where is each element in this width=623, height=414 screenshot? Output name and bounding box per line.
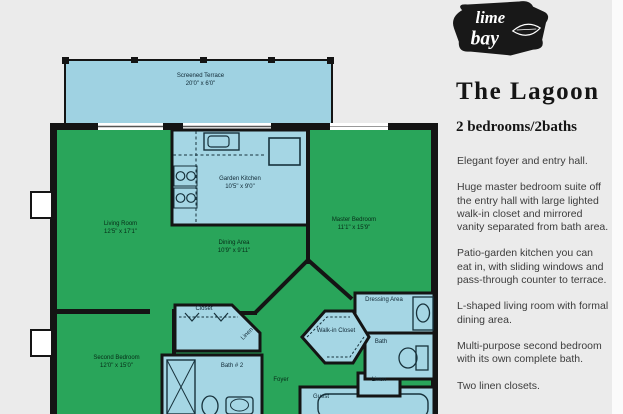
description-paragraph: Multi-purpose second bedroom with its ow… [457, 340, 610, 367]
label-second-bedroom: Second Bedroom 12'0" x 15'0" [74, 355, 159, 370]
label-dressing-area: Dressing Area [361, 297, 407, 305]
logo-word-lime: lime [476, 8, 506, 27]
label-walk-in-closet: Walk-in Closet [316, 328, 356, 336]
label-bath-2: Bath # 2 [209, 363, 255, 371]
label-linen-master: Linen [361, 377, 397, 385]
label-master-bedroom: Master Bedroom 11'1" x 15'9" [314, 217, 394, 232]
label-guest: Guest [305, 394, 337, 402]
description-paragraph: Huge master bedroom suite off the entry … [457, 181, 610, 234]
plan-title: The Lagoon [456, 78, 616, 106]
description-paragraph: Patio-garden kitchen you can eat in, wit… [457, 247, 610, 287]
label-living-room: Living Room 12'5" x 17'1" [78, 221, 163, 236]
lime-bay-logo: lime bay [452, 1, 550, 56]
description-paragraph: L-shaped living room with formal dining … [457, 300, 610, 327]
floorplan: Screened Terrace 20'0" x 6'0" Living Roo… [28, 54, 440, 414]
description-paragraph: Elegant foyer and entry hall. [457, 155, 610, 168]
plan-subtitle: 2 bedrooms/2baths [456, 119, 577, 136]
plan-description: Elegant foyer and entry hall. Huge maste… [457, 155, 610, 406]
label-closet: Closet [184, 306, 224, 314]
label-garden-kitchen: Garden Kitchen 10'5" x 9'0" [200, 176, 280, 191]
label-dining-area: Dining Area 10'9" x 9'11" [194, 240, 274, 255]
label-foyer: Foyer [263, 377, 299, 385]
label-bath: Bath [367, 339, 395, 347]
page-right-margin [612, 0, 623, 414]
logo-word-bay: bay [471, 29, 500, 50]
description-paragraph: Two linen closets. [457, 380, 610, 393]
label-screened-terrace: Screened Terrace 20'0" x 6'0" [133, 73, 268, 88]
